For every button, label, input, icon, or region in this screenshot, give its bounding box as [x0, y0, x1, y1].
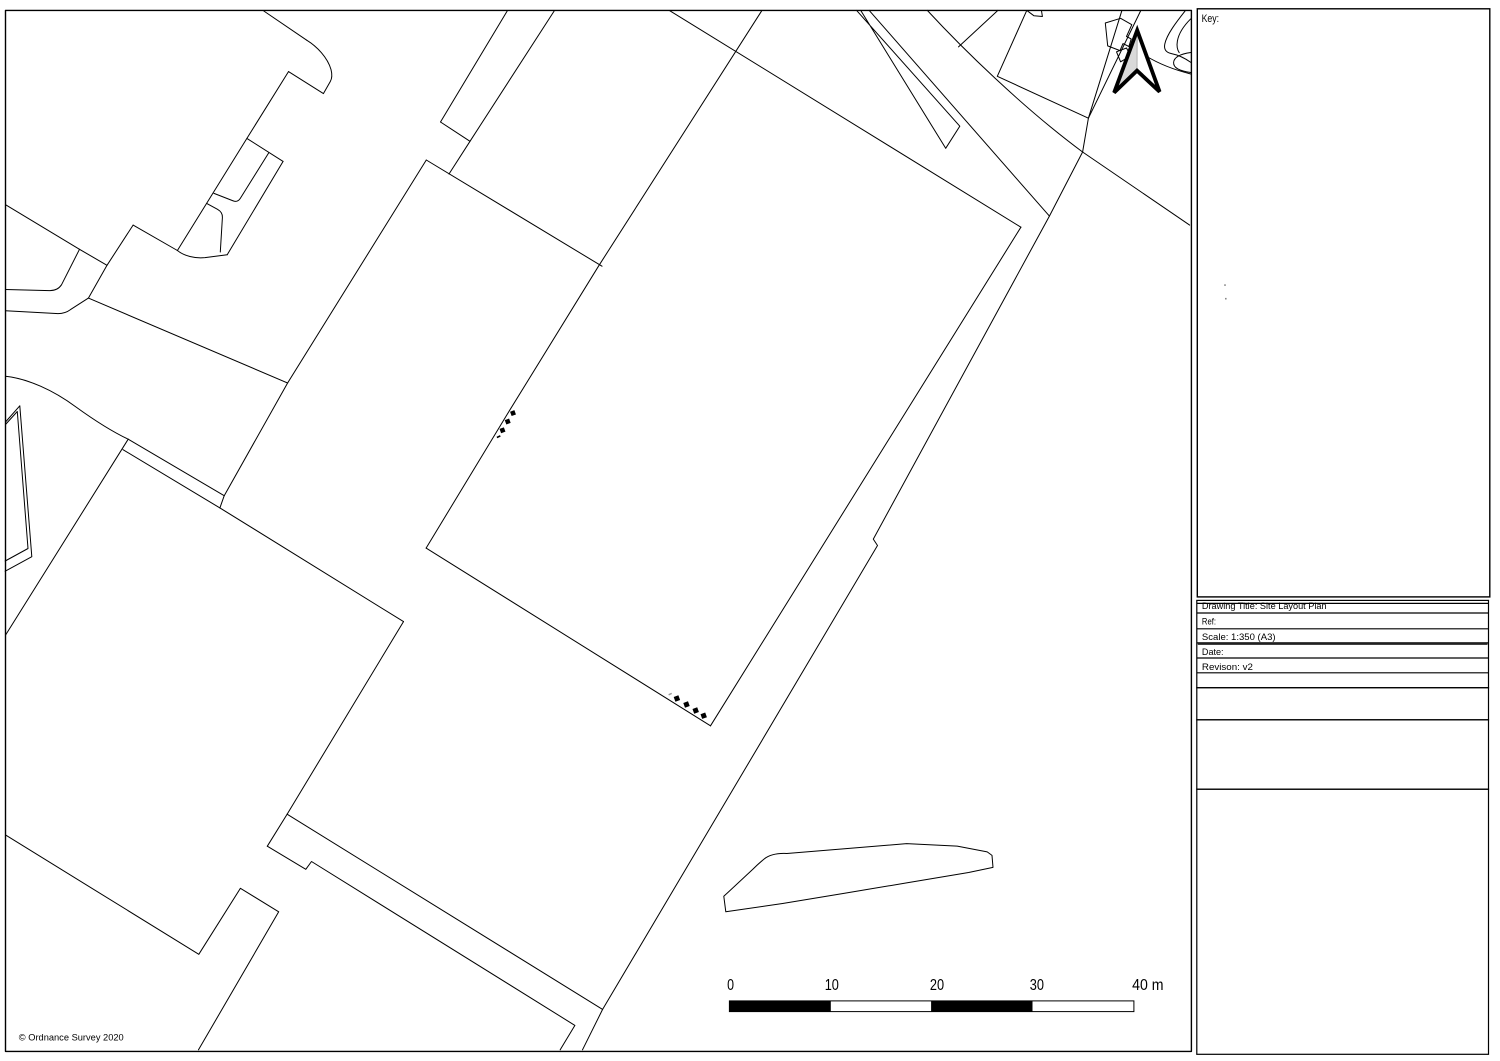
- svg-text:10: 10: [825, 977, 840, 994]
- svg-text:© Ordnance Survey 2020: © Ordnance Survey 2020: [19, 1032, 124, 1042]
- svg-text:Date:: Date:: [1202, 647, 1224, 657]
- svg-text:30: 30: [1030, 977, 1045, 994]
- svg-text:40 m: 40 m: [1132, 977, 1163, 994]
- svg-text:Drawing Title: Site Layout Pla: Drawing Title: Site Layout Plan: [1202, 601, 1327, 611]
- svg-text:0: 0: [727, 977, 734, 994]
- svg-text:Ref:: Ref:: [1202, 617, 1216, 627]
- svg-text:20: 20: [930, 977, 945, 994]
- svg-text:Key:: Key:: [1202, 13, 1219, 25]
- svg-text:Scale: 1:350 (A3): Scale: 1:350 (A3): [1202, 632, 1276, 642]
- svg-text:Revison: v2: Revison: v2: [1202, 662, 1253, 672]
